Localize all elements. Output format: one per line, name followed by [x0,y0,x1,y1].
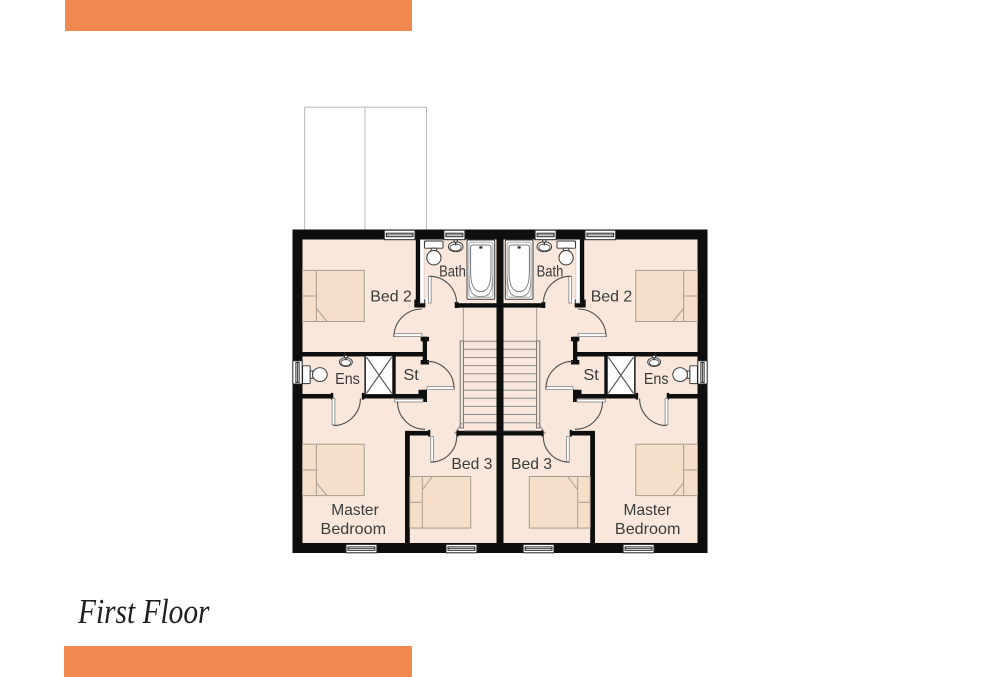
svg-text:Master: Master [331,502,379,519]
svg-text:Bed 2: Bed 2 [591,288,633,305]
svg-text:St: St [403,367,419,384]
svg-text:Bed 2: Bed 2 [370,288,412,305]
svg-text:Bed 3: Bed 3 [511,456,552,473]
svg-text:Bath: Bath [439,263,466,280]
svg-text:Ens: Ens [335,371,360,388]
svg-text:Bath: Bath [537,263,564,280]
svg-text:Bed 3: Bed 3 [451,456,492,473]
svg-text:Ens: Ens [644,371,669,388]
svg-text:Bedroom: Bedroom [615,521,681,538]
svg-text:Master: Master [624,502,672,519]
svg-text:First Floor: First Floor [77,592,210,631]
svg-text:Bedroom: Bedroom [321,521,387,538]
svg-text:St: St [583,367,599,384]
